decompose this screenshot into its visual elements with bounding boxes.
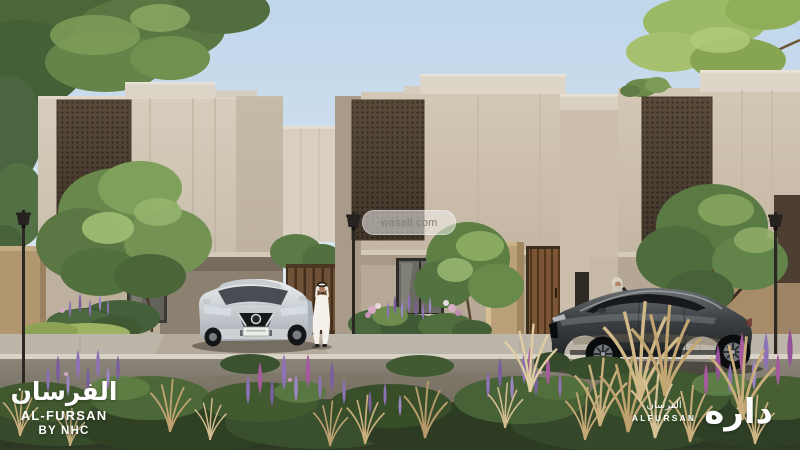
project-title-arabic: الفرسان [10, 378, 118, 405]
architectural-rendering: wasalt.com الفرسان AL-FURSAN BY NHC الفر… [0, 0, 800, 450]
logo-arabic-small: الفرسان [632, 400, 696, 411]
project-subtitle: BY NHC [10, 425, 118, 437]
watermark-pill: wasalt.com [362, 210, 456, 235]
watermark-text: wasalt.com [380, 217, 437, 229]
logo-arabic-wordmark: داره [704, 396, 773, 428]
logo-latin-small: ALFURSAN [632, 413, 696, 423]
project-title-latin: AL-FURSAN [10, 408, 118, 423]
developer-logo: الفرسان ALFURSAN داره [632, 396, 773, 428]
logo-subtext: الفرسان ALFURSAN [632, 400, 696, 428]
project-branding: الفرسان AL-FURSAN BY NHC [10, 378, 118, 437]
